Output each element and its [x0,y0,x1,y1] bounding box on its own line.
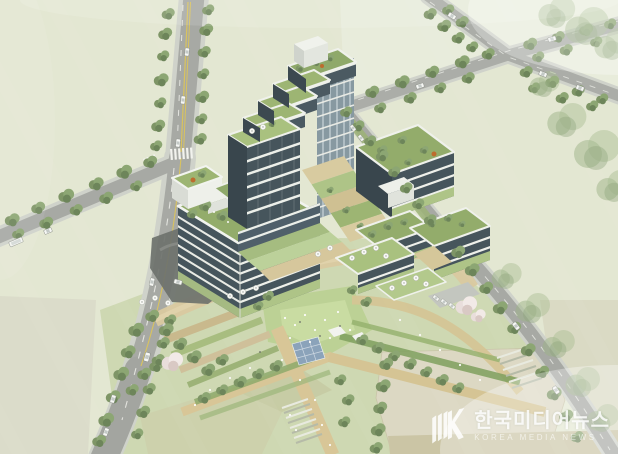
umbrella-icon [227,293,232,298]
umbrella-icon [361,249,366,254]
umbrella-icon [349,255,354,260]
umbrella-icon [423,281,428,286]
car-icon [180,96,185,104]
umbrella-icon [383,253,388,258]
car-icon [184,48,189,56]
car-icon [175,139,180,147]
umbrella-icon [260,124,265,129]
umbrella-icon [327,245,332,250]
rendering-canvas: 한국미디어뉴스 KOREA MEDIA NEWS [0,0,618,454]
umbrella-icon [401,280,406,285]
umbrella-icon [240,289,245,294]
umbrella-icon [389,285,394,290]
umbrella-icon [413,275,418,280]
umbrella-icon [152,295,157,300]
umbrella-icon [315,251,320,256]
umbrella-icon [165,300,170,305]
umbrella-icon [249,128,254,133]
umbrella-icon [253,285,258,290]
umbrella-icon [373,245,378,250]
umbrella-icon [139,299,144,304]
